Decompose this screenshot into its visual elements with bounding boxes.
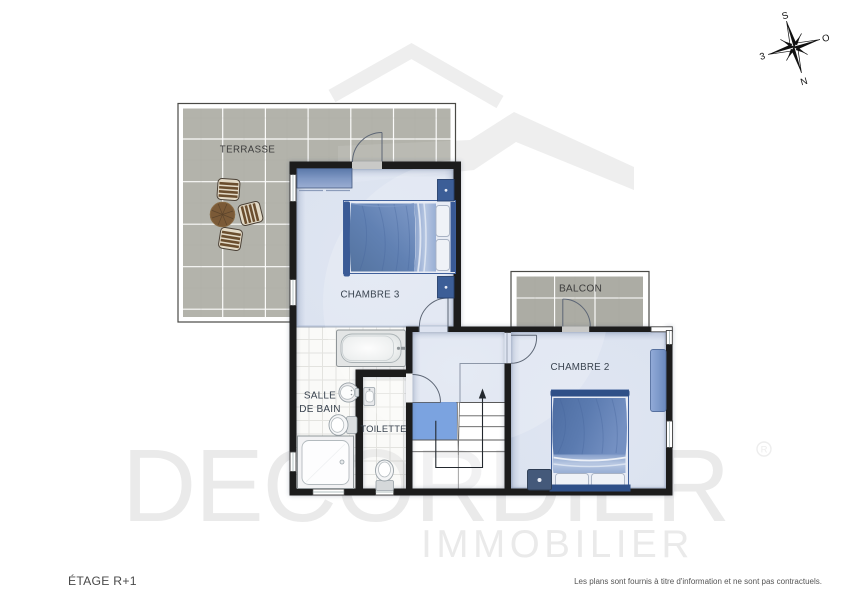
svg-text:DE BAIN: DE BAIN xyxy=(299,404,340,415)
svg-text:CHAMBRE 2: CHAMBRE 2 xyxy=(551,362,610,373)
svg-text:BALCON: BALCON xyxy=(559,284,602,295)
svg-text:ÉTAGE R+1: ÉTAGE R+1 xyxy=(68,573,137,588)
svg-text:SALLE: SALLE xyxy=(304,391,336,402)
svg-text:TERRASSE: TERRASSE xyxy=(220,145,276,156)
svg-text:R: R xyxy=(761,445,768,456)
svg-text:CHAMBRE 3: CHAMBRE 3 xyxy=(341,290,400,301)
svg-text:TOILETTE: TOILETTE xyxy=(360,423,406,434)
svg-text:Les plans sont fournis à titre: Les plans sont fournis à titre d'informa… xyxy=(574,577,822,586)
svg-text:IMMOBILIER: IMMOBILIER xyxy=(421,523,694,566)
